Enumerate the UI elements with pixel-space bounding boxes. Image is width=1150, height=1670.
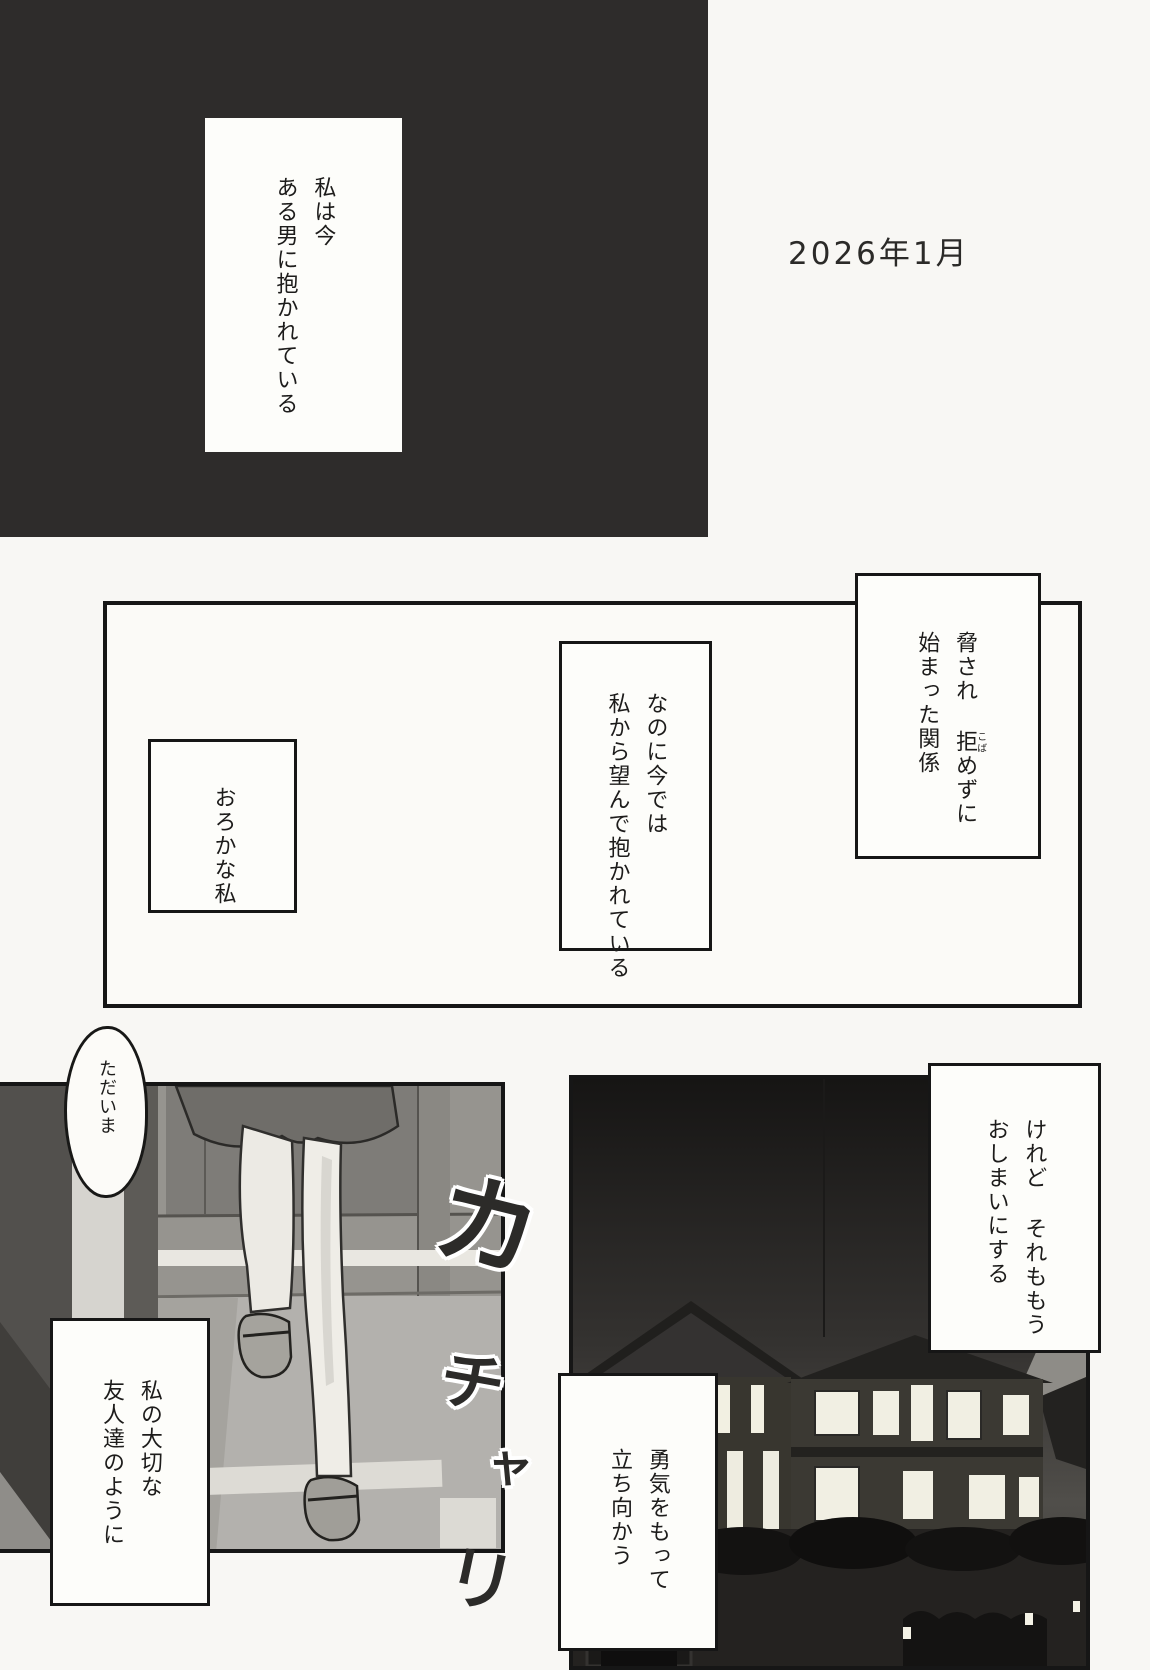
sfx-chi: チ [435, 1347, 509, 1421]
caption-line: ある男に抱かれている [269, 176, 301, 416]
caption-box-nanoni: なのに今では 私から望んで抱かれている [559, 641, 712, 951]
caption-line: 友人達のように [95, 1379, 127, 1547]
caption-line: 脅され 拒こばめずに [948, 631, 985, 826]
date-caption: 2026年1月 [788, 228, 970, 273]
caption-line: おろかな私 [207, 786, 239, 906]
caption-box-watashi: 私の大切な 友人達のように [50, 1318, 210, 1606]
caption-line: おしまいにする [980, 1118, 1012, 1286]
manga-page: 私は今 ある男に抱かれている 2026年1月 脅され 拒こばめずに 始まった関係… [0, 0, 1150, 1670]
front-loafer [305, 1477, 359, 1540]
caption-box-oroka: おろかな私 [148, 739, 297, 913]
caption-line: 私から望んで抱かれている [601, 692, 633, 980]
caption-line: 私は今 [307, 176, 339, 248]
caption-line: なのに今では [639, 692, 671, 836]
back-leg [240, 1126, 294, 1312]
caption-line: 始まった関係 [910, 631, 942, 775]
caption-box-threat: 脅され 拒こばめずに 始まった関係 [855, 573, 1041, 859]
furigana-text: こば [975, 730, 986, 754]
back-loafer [239, 1314, 291, 1377]
caption-line: 勇気をもって [641, 1448, 673, 1592]
speech-text: ただいま [93, 1059, 119, 1195]
caption-kanji: 拒 [952, 730, 977, 754]
caption-text: 脅され [952, 631, 977, 730]
furigana-ruby: 拒こば [952, 730, 977, 754]
caption-text: めずに [952, 754, 977, 826]
sfx-ri: リ [440, 1542, 521, 1623]
caption-line: 立ち向かう [603, 1448, 635, 1568]
sfx-ya: ャ [483, 1438, 536, 1491]
caption-line: けれど それももう [1018, 1118, 1050, 1337]
speech-bubble-tadaima: ただいま [64, 1026, 148, 1198]
caption-box-intro: 私は今 ある男に抱かれている [205, 118, 402, 452]
skirt-hem [176, 1086, 398, 1147]
caption-line: 私の大切な [133, 1379, 165, 1499]
caption-box-keredo: けれど それももう おしまいにする [928, 1063, 1101, 1353]
caption-box-yuuki: 勇気をもって 立ち向かう [558, 1373, 718, 1651]
